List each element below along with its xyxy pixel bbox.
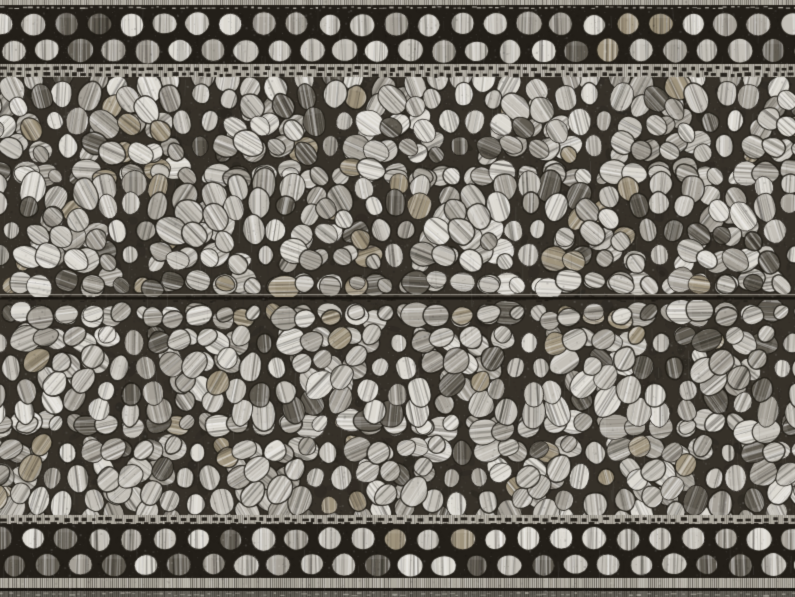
cobblestone-pattern-canvas [0,0,795,597]
cobblestone-texture-root: Cobblestone pavement texture sheet [0,0,795,597]
